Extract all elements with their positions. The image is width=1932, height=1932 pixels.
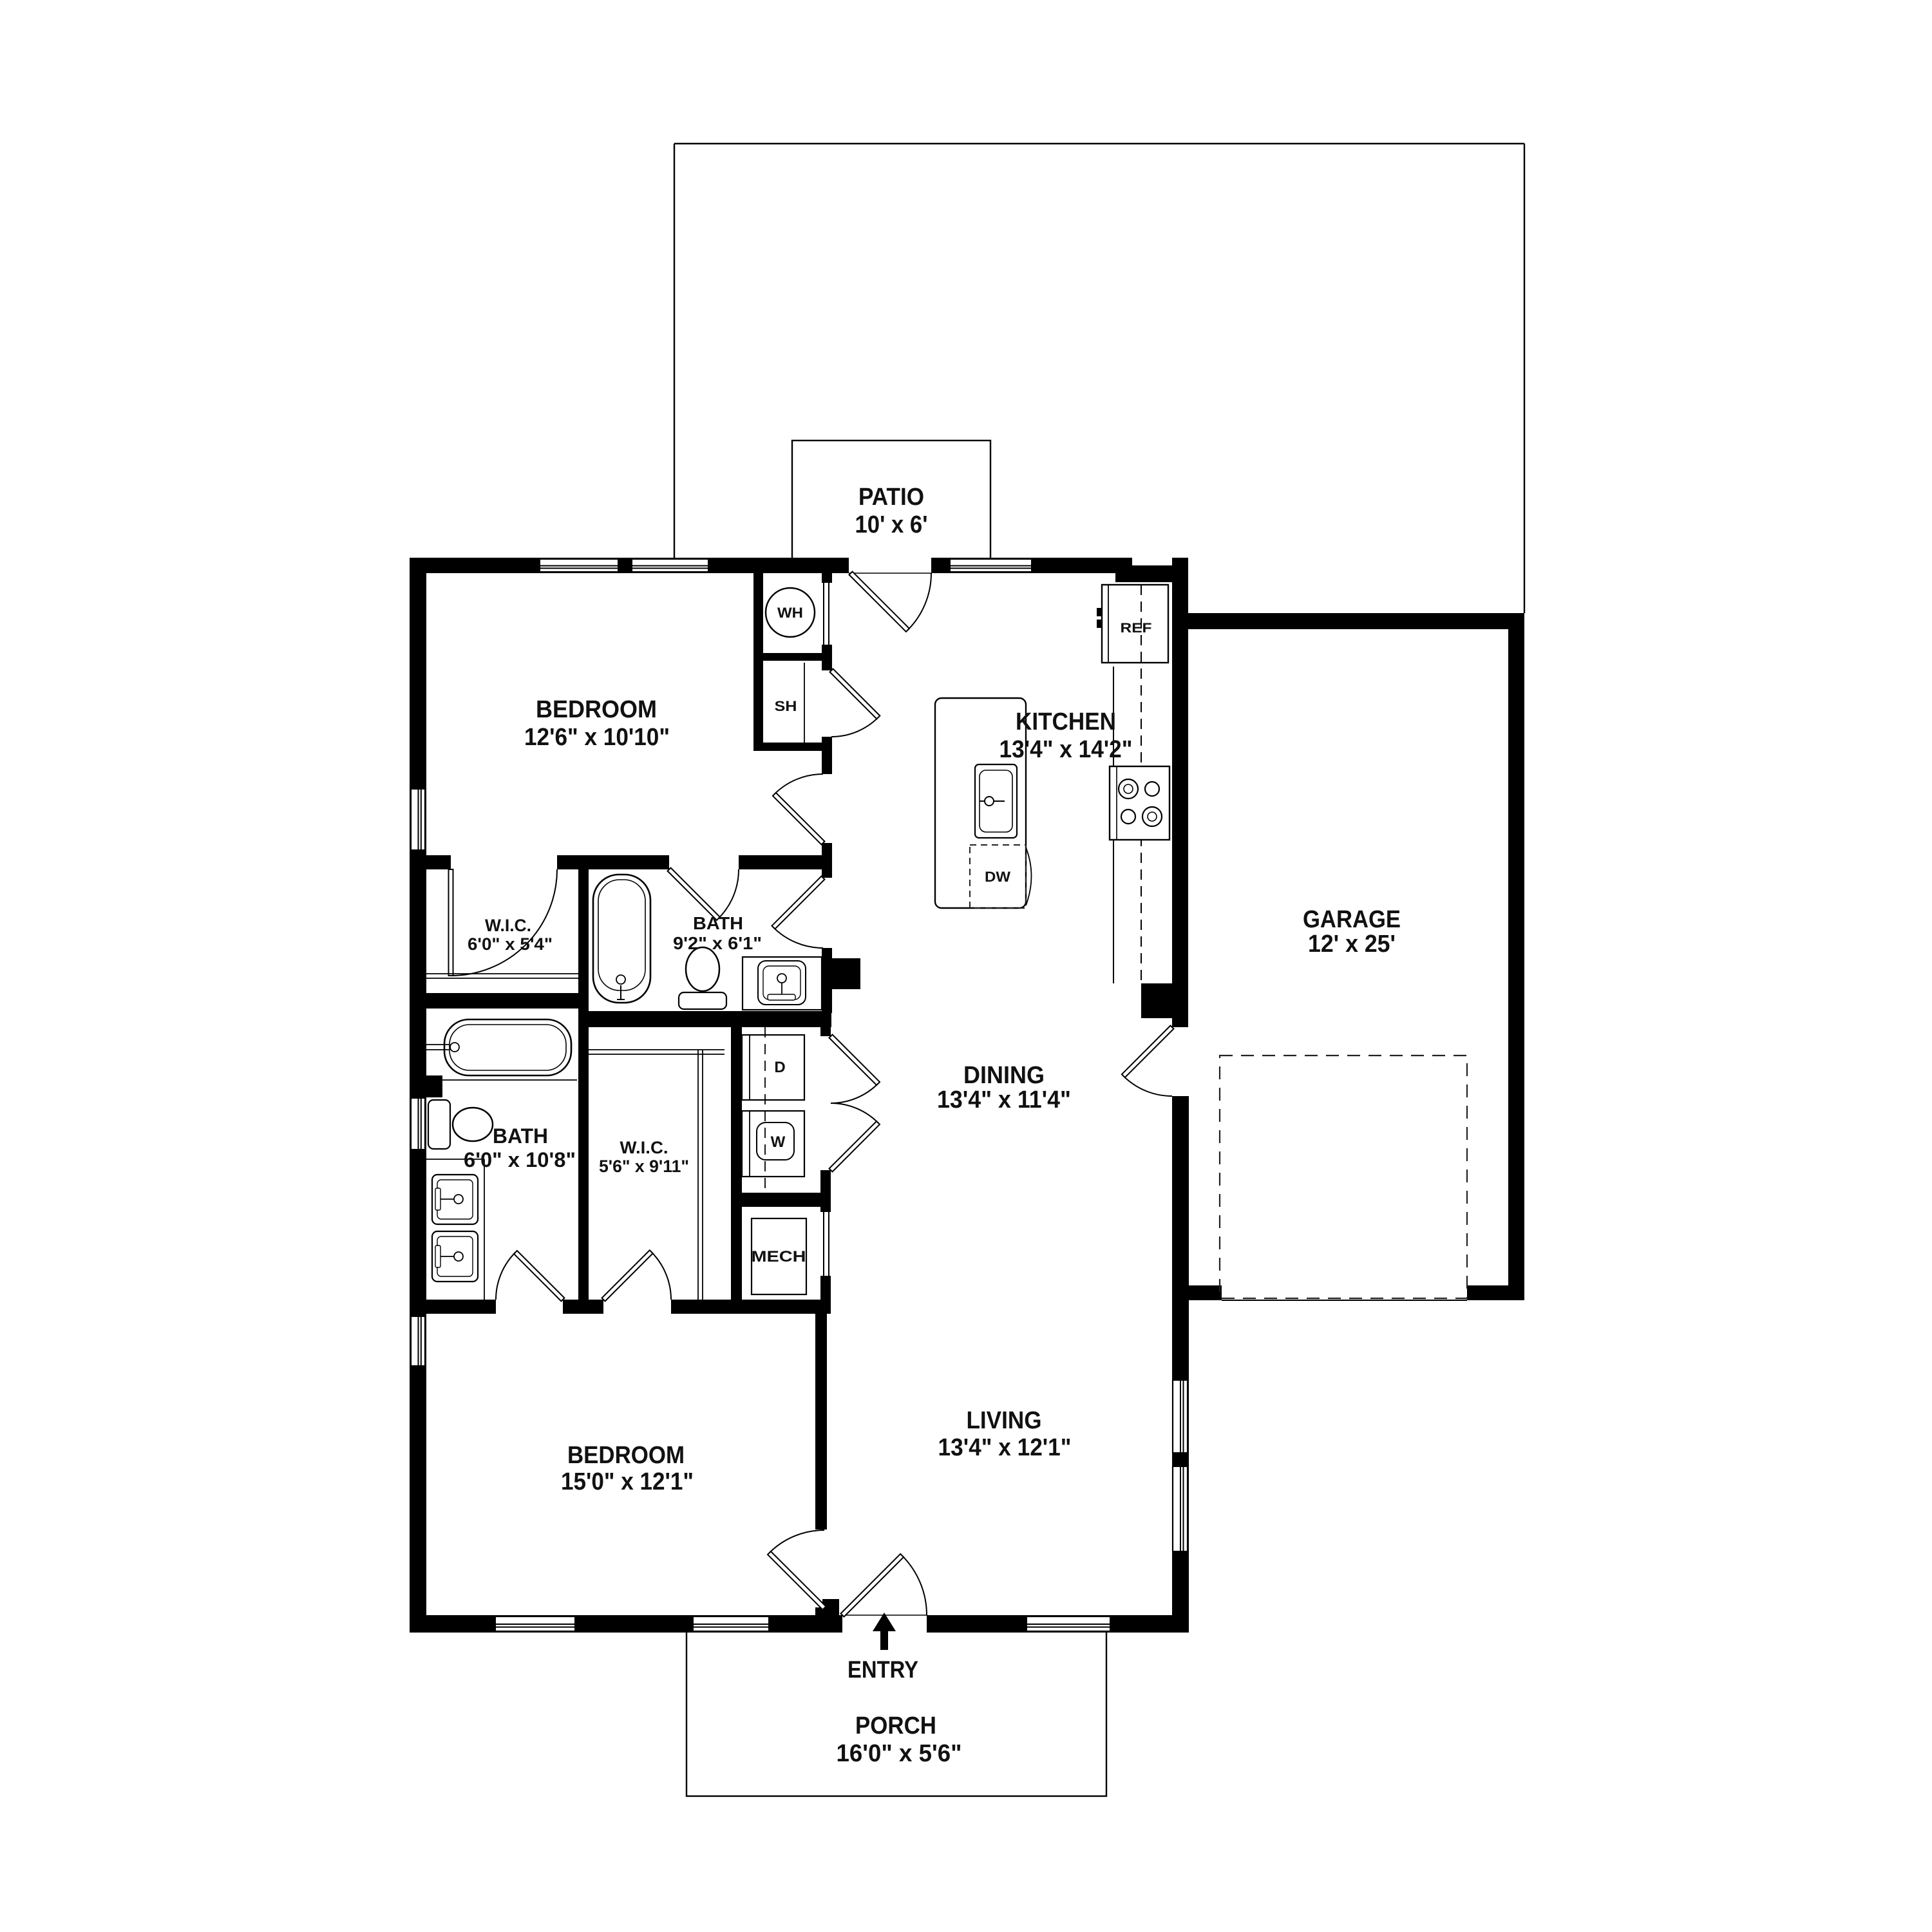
svg-text:PORCH: PORCH (855, 1712, 936, 1739)
svg-text:DINING: DINING (963, 1062, 1045, 1089)
svg-text:D: D (774, 1059, 785, 1076)
svg-text:W: W (771, 1133, 786, 1151)
svg-text:6'0" x 10'8": 6'0" x 10'8" (464, 1148, 576, 1171)
svg-text:10' x 6': 10' x 6' (855, 511, 928, 538)
svg-text:GARAGE: GARAGE (1303, 906, 1401, 933)
svg-text:12'6" x 10'10": 12'6" x 10'10" (524, 724, 670, 751)
svg-text:16'0" x 5'6": 16'0" x 5'6" (837, 1740, 962, 1767)
svg-text:BATH: BATH (493, 1124, 548, 1148)
svg-text:REF: REF (1121, 621, 1152, 636)
svg-text:13'4" x 14'2": 13'4" x 14'2" (999, 736, 1133, 763)
svg-text:PATIO: PATIO (858, 484, 924, 511)
svg-text:15'0" x 12'1": 15'0" x 12'1" (561, 1468, 694, 1495)
svg-text:BEDROOM: BEDROOM (567, 1442, 685, 1469)
svg-text:BEDROOM: BEDROOM (536, 696, 657, 723)
svg-text:SH: SH (775, 698, 797, 714)
svg-text:ENTRY: ENTRY (848, 1656, 918, 1683)
svg-text:LIVING: LIVING (967, 1407, 1042, 1434)
svg-text:13'4" x 11'4": 13'4" x 11'4" (937, 1086, 1071, 1113)
svg-text:5'6" x 9'11": 5'6" x 9'11" (599, 1157, 689, 1176)
svg-text:12' x 25': 12' x 25' (1308, 931, 1396, 958)
svg-text:W.I.C.: W.I.C. (485, 916, 531, 935)
svg-text:W.I.C.: W.I.C. (620, 1138, 668, 1157)
svg-text:BATH: BATH (693, 913, 743, 933)
svg-text:MECH: MECH (752, 1248, 806, 1265)
svg-text:13'4" x 12'1": 13'4" x 12'1" (938, 1434, 1072, 1461)
svg-text:DW: DW (985, 869, 1010, 885)
svg-text:WH: WH (777, 605, 803, 621)
svg-text:9'2" x 6'1": 9'2" x 6'1" (673, 933, 762, 953)
svg-text:KITCHEN: KITCHEN (1016, 708, 1116, 735)
svg-text:6'0" x 5'4": 6'0" x 5'4" (468, 934, 553, 954)
